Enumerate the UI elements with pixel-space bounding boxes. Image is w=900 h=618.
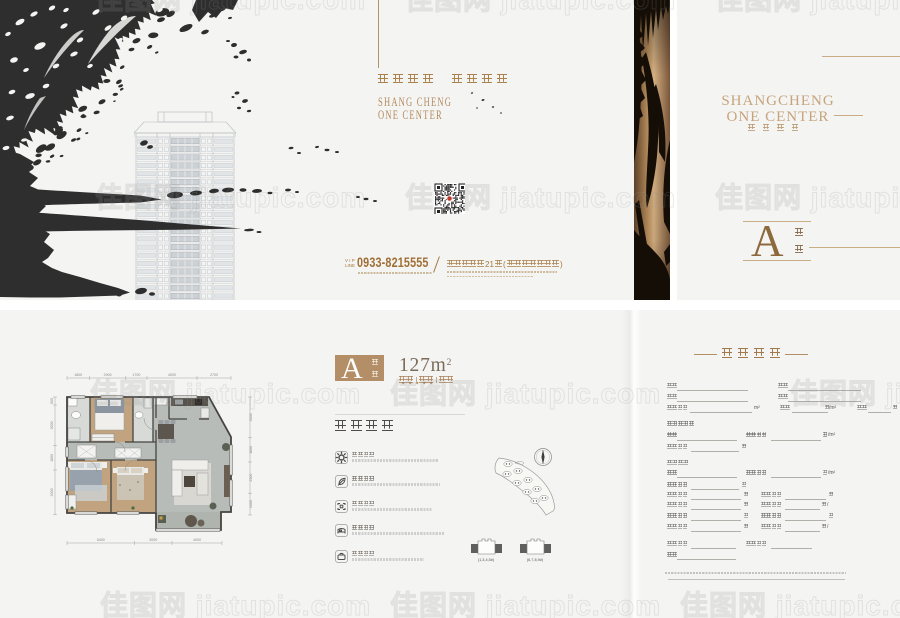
svg-text:3300: 3300 xyxy=(50,488,54,496)
svg-text:600: 600 xyxy=(50,398,54,404)
svg-text:(1,3,4,5#): (1,3,4,5#) xyxy=(478,558,495,562)
svg-text:3000: 3000 xyxy=(249,413,253,421)
svg-text:1800: 1800 xyxy=(74,373,82,377)
svg-text:1800: 1800 xyxy=(50,454,54,462)
svg-text:2300: 2300 xyxy=(249,474,253,482)
svg-text:1600: 1600 xyxy=(249,500,253,508)
svg-text:4000: 4000 xyxy=(193,538,201,542)
svg-text:3000: 3000 xyxy=(149,538,157,542)
svg-text:5400: 5400 xyxy=(97,538,105,542)
svg-text:3000: 3000 xyxy=(50,421,54,429)
svg-text:1800: 1800 xyxy=(249,446,253,454)
svg-text:(6,7,8,9#): (6,7,8,9#) xyxy=(527,558,544,562)
